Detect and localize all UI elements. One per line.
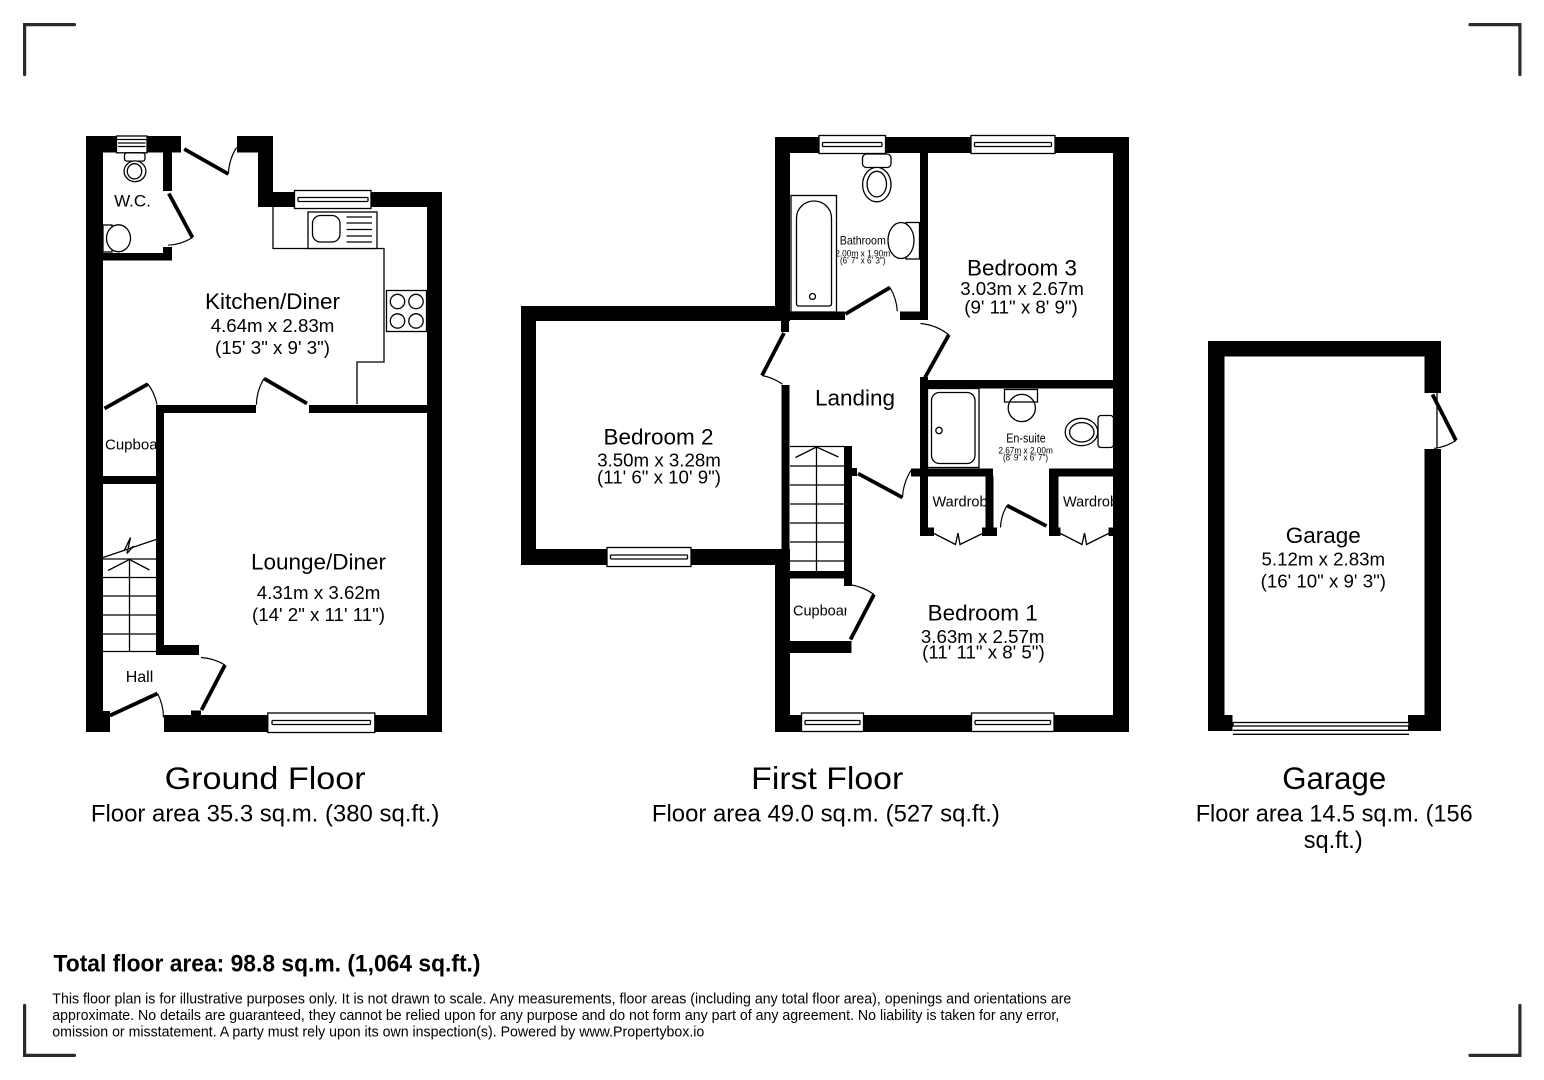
svg-text:4.31m x 3.62m: 4.31m x 3.62m — [257, 582, 381, 603]
svg-text:Kitchen/Diner: Kitchen/Diner — [205, 289, 341, 314]
svg-text:omission or misstatement. A pa: omission or misstatement. A party must r… — [52, 1024, 704, 1041]
svg-text:(16' 10" x 9' 3"): (16' 10" x 9' 3") — [1261, 571, 1386, 592]
svg-text:approximate. No details are gu: approximate. No details are guaranteed, … — [52, 1007, 1059, 1024]
svg-text:Ground Floor: Ground Floor — [165, 760, 366, 796]
svg-text:W.C.: W.C. — [114, 192, 151, 211]
svg-text:Garage: Garage — [1282, 760, 1386, 796]
svg-text:Total floor area: 98.8 sq.m. (: Total floor area: 98.8 sq.m. (1,064 sq.f… — [54, 950, 481, 977]
svg-text:5.12m x 2.83m: 5.12m x 2.83m — [1261, 549, 1385, 570]
svg-text:Garage: Garage — [1286, 523, 1361, 548]
svg-text:Bedroom 3: Bedroom 3 — [967, 256, 1077, 281]
svg-text:(11' 6" x 10' 9"): (11' 6" x 10' 9") — [597, 467, 721, 488]
svg-text:Floor area 14.5 sq.m. (156: Floor area 14.5 sq.m. (156 — [1196, 800, 1473, 827]
svg-text:This floor plan is for illustr: This floor plan is for illustrative purp… — [52, 990, 1071, 1007]
svg-text:4.64m x 2.83m: 4.64m x 2.83m — [211, 315, 335, 336]
svg-text:(15' 3" x 9' 3"): (15' 3" x 9' 3") — [215, 337, 330, 358]
svg-text:Bedroom 1: Bedroom 1 — [928, 601, 1038, 626]
svg-text:Bathroom: Bathroom — [840, 233, 886, 247]
svg-text:(6' 7" x 6' 3"): (6' 7" x 6' 3") — [840, 256, 886, 266]
svg-text:First Floor: First Floor — [751, 760, 903, 796]
svg-text:sq.ft.): sq.ft.) — [1304, 827, 1363, 854]
svg-text:Lounge/Diner: Lounge/Diner — [251, 550, 387, 575]
svg-text:(14' 2" x 11' 11"): (14' 2" x 11' 11") — [252, 604, 385, 625]
svg-text:Bedroom 2: Bedroom 2 — [603, 425, 713, 450]
svg-text:(9' 11" x 8' 9"): (9' 11" x 8' 9") — [964, 297, 1078, 318]
svg-text:Hall: Hall — [126, 669, 154, 686]
svg-text:(11' 11" x 8' 5"): (11' 11" x 8' 5") — [922, 642, 1045, 663]
svg-text:Floor area 49.0 sq.m. (527 sq.: Floor area 49.0 sq.m. (527 sq.ft.) — [652, 800, 1000, 827]
svg-text:Landing: Landing — [815, 386, 895, 411]
svg-text:(8' 9" x 6' 7"): (8' 9" x 6' 7") — [1003, 453, 1048, 464]
svg-text:Floor area 35.3 sq.m. (380 sq.: Floor area 35.3 sq.m. (380 sq.ft.) — [91, 800, 440, 827]
svg-text:En-suite: En-suite — [1006, 431, 1046, 446]
